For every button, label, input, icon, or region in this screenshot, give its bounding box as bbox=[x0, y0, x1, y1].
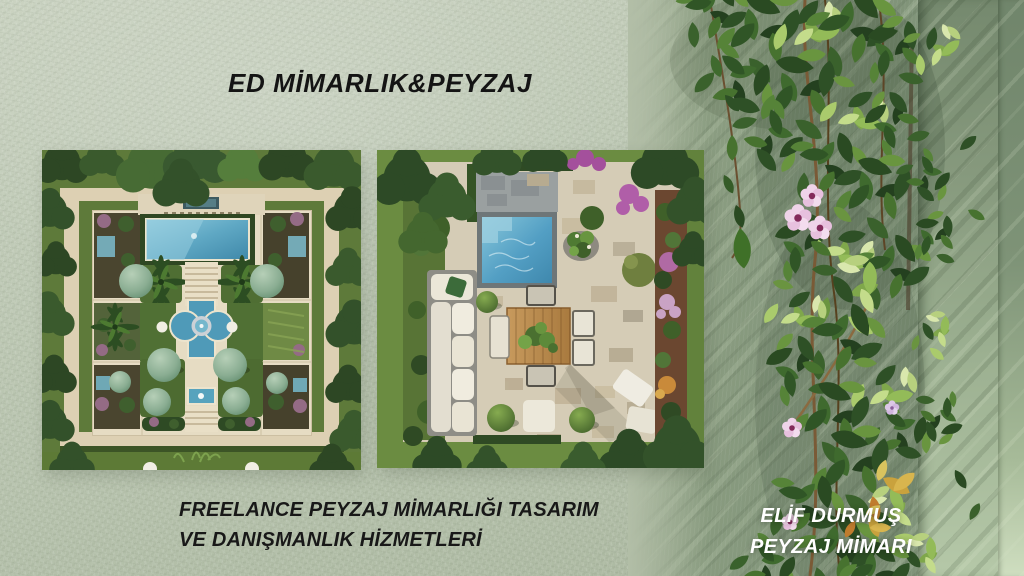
bottom-hedge bbox=[473, 435, 561, 444]
stone-patio bbox=[476, 172, 558, 212]
plunge-pool bbox=[477, 212, 557, 288]
outdoor-sofa bbox=[427, 270, 477, 436]
services-line-1: FREELANCE PEYZAJ MİMARLIĞI TASARIM bbox=[179, 495, 599, 525]
services-line-2: VE DANIŞMANLIK HİZMETLERİ bbox=[179, 525, 599, 555]
author-name: ELİF DURMUŞ bbox=[733, 501, 929, 532]
author-caption: ELİF DURMUŞ PEYZAJ MİMARI bbox=[733, 501, 929, 563]
slide-canvas: ED MİMARLIK&PEYZAJ bbox=[0, 0, 1024, 576]
climbing-vine bbox=[640, 0, 1024, 576]
formal-garden-illustration bbox=[42, 150, 361, 470]
main-pool bbox=[140, 214, 255, 265]
garden-plan-image bbox=[42, 150, 361, 470]
brand-title: ED MİMARLIK&PEYZAJ bbox=[228, 68, 532, 99]
services-caption: FREELANCE PEYZAJ MİMARLIĞI TASARIM VE DA… bbox=[179, 495, 599, 555]
author-role: PEYZAJ MİMARI bbox=[733, 532, 929, 563]
